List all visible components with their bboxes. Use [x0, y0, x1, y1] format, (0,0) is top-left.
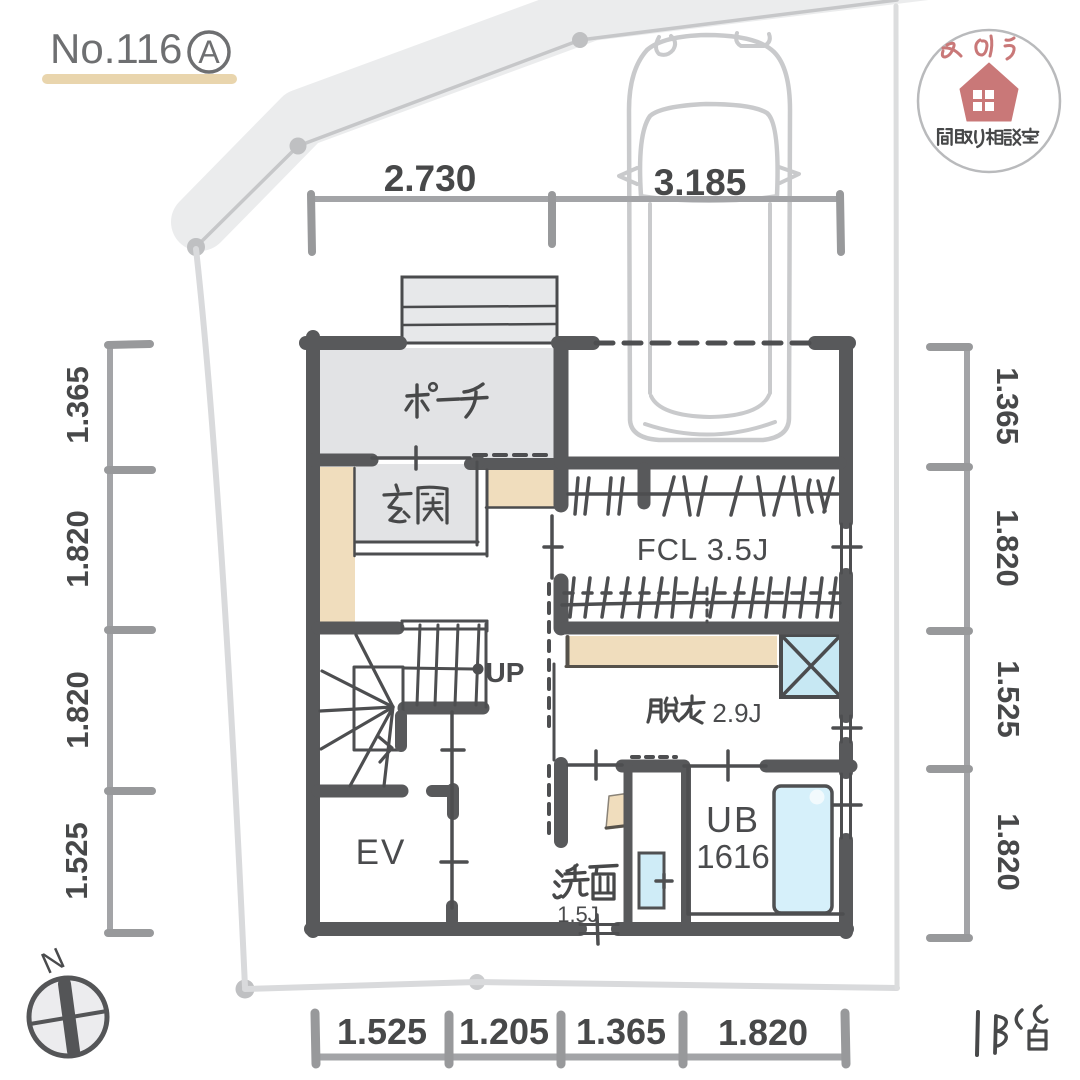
svg-text:1.820: 1.820: [60, 510, 95, 588]
svg-text:1.525: 1.525: [59, 822, 94, 900]
svg-text:1.820: 1.820: [718, 1012, 808, 1053]
svg-text:2.9J: 2.9J: [712, 698, 761, 728]
svg-text:3.185: 3.185: [654, 162, 747, 203]
svg-text:1616: 1616: [696, 838, 769, 875]
svg-text:EV: EV: [356, 833, 407, 872]
svg-text:UB: UB: [706, 799, 760, 840]
svg-text:1.525: 1.525: [337, 1011, 427, 1052]
svg-text:FCL 3.5J: FCL 3.5J: [637, 532, 770, 567]
svg-text:1.820: 1.820: [991, 813, 1026, 891]
svg-text:A: A: [198, 34, 220, 70]
svg-text:1.365: 1.365: [990, 367, 1025, 445]
svg-text:UP: UP: [486, 657, 525, 688]
svg-text:1.365: 1.365: [576, 1011, 666, 1052]
svg-text:1.820: 1.820: [990, 509, 1025, 587]
svg-text:1.820: 1.820: [60, 671, 95, 749]
svg-text:No.116: No.116: [50, 25, 182, 72]
svg-text:1.205: 1.205: [459, 1011, 549, 1052]
svg-text:2.730: 2.730: [384, 158, 477, 199]
svg-text:1.365: 1.365: [60, 366, 95, 444]
svg-text:1.5J: 1.5J: [557, 902, 599, 927]
svg-text:1.525: 1.525: [991, 660, 1026, 738]
